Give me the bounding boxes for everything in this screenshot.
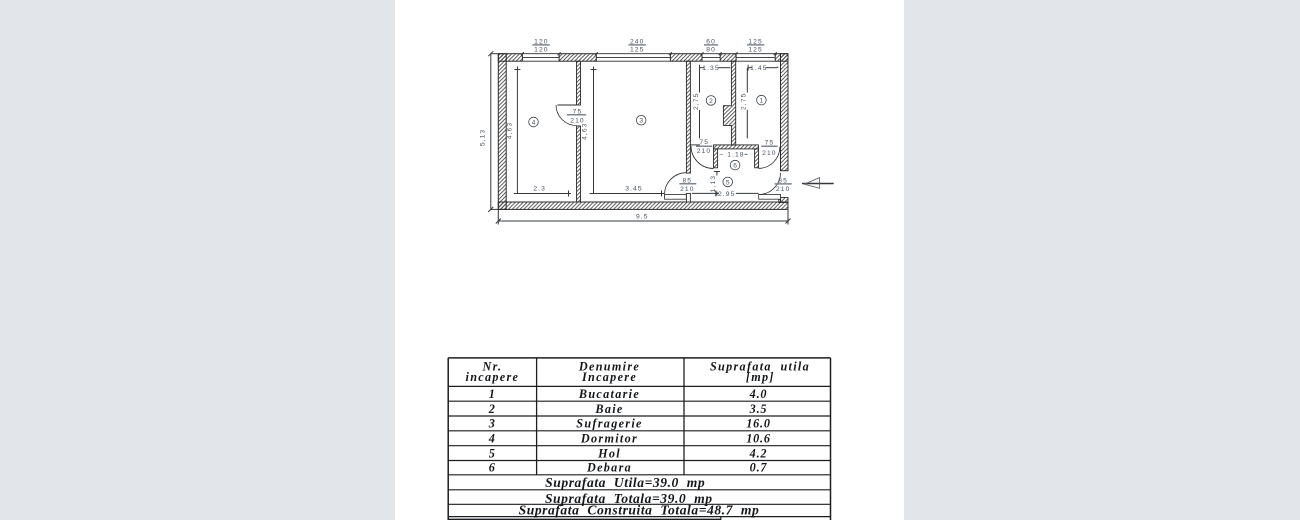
svg-text:Suprafata Construita Totala=: Suprafata Construita Totala=48.7 mp [519,503,760,518]
svg-text:2.3: 2.3 [533,185,546,192]
svg-text:Suprafata Utila=39.0 mp: Suprafata Utila=39.0 mp [545,475,705,490]
svg-text:6: 6 [733,163,737,170]
svg-text:Incapere: Incapere [581,370,637,384]
svg-text:4,63: 4,63 [506,122,513,139]
svg-text:80: 80 [706,46,716,53]
svg-text:210: 210 [570,118,584,125]
svg-text:2,75: 2,75 [741,93,748,110]
svg-text:6: 6 [489,461,496,475]
svg-text:210: 210 [697,148,711,155]
svg-text:2.95: 2.95 [718,191,735,198]
svg-text:1: 1 [760,98,764,105]
svg-text:3: 3 [488,417,496,431]
svg-text:4.0: 4.0 [749,387,768,401]
svg-text:Hol: Hol [597,446,621,460]
svg-text:3.5: 3.5 [749,402,768,416]
svg-text:Bucatarie: Bucatarie [578,387,640,401]
svg-text:120: 120 [534,46,548,53]
svg-text:5,13: 5,13 [479,129,486,146]
svg-text:16.0: 16.0 [746,417,771,431]
svg-text:3: 3 [639,118,643,125]
svg-text:3.45: 3.45 [625,185,642,192]
svg-text:125: 125 [630,46,644,53]
svg-text:1.35: 1.35 [702,65,719,72]
svg-text:incapere: incapere [466,370,520,384]
svg-text:5: 5 [726,179,730,186]
svg-text:1: 1 [489,387,496,401]
svg-text:4: 4 [488,432,496,446]
svg-text:2: 2 [488,402,496,416]
svg-text:4: 4 [532,119,536,126]
svg-text:~ 1.18: ~ 1.18 [719,152,744,159]
svg-text:Sufragerie: Sufragerie [576,417,643,431]
svg-text:0.7: 0.7 [750,461,768,475]
svg-text:2: 2 [709,98,713,105]
svg-text:125: 125 [748,46,762,53]
svg-text:210: 210 [776,186,790,193]
svg-text:75: 75 [699,139,709,146]
svg-text:1,13: 1,13 [710,175,717,192]
svg-text:210: 210 [762,150,776,157]
svg-text:[mp]: [mp] [746,370,775,384]
svg-text:75: 75 [765,139,775,146]
svg-text:10.6: 10.6 [746,432,771,446]
svg-text:9.5: 9.5 [636,214,649,221]
svg-text:5: 5 [489,446,496,460]
svg-text:4.2: 4.2 [749,446,768,460]
svg-text:Dormitor: Dormitor [580,432,638,446]
svg-text:1.45: 1.45 [750,65,767,72]
svg-text:2,75: 2,75 [693,93,700,110]
svg-text:210: 210 [680,186,694,193]
svg-text:4,63: 4,63 [582,122,589,139]
svg-text:Baie: Baie [594,402,623,416]
svg-text:Debara: Debara [586,461,632,475]
